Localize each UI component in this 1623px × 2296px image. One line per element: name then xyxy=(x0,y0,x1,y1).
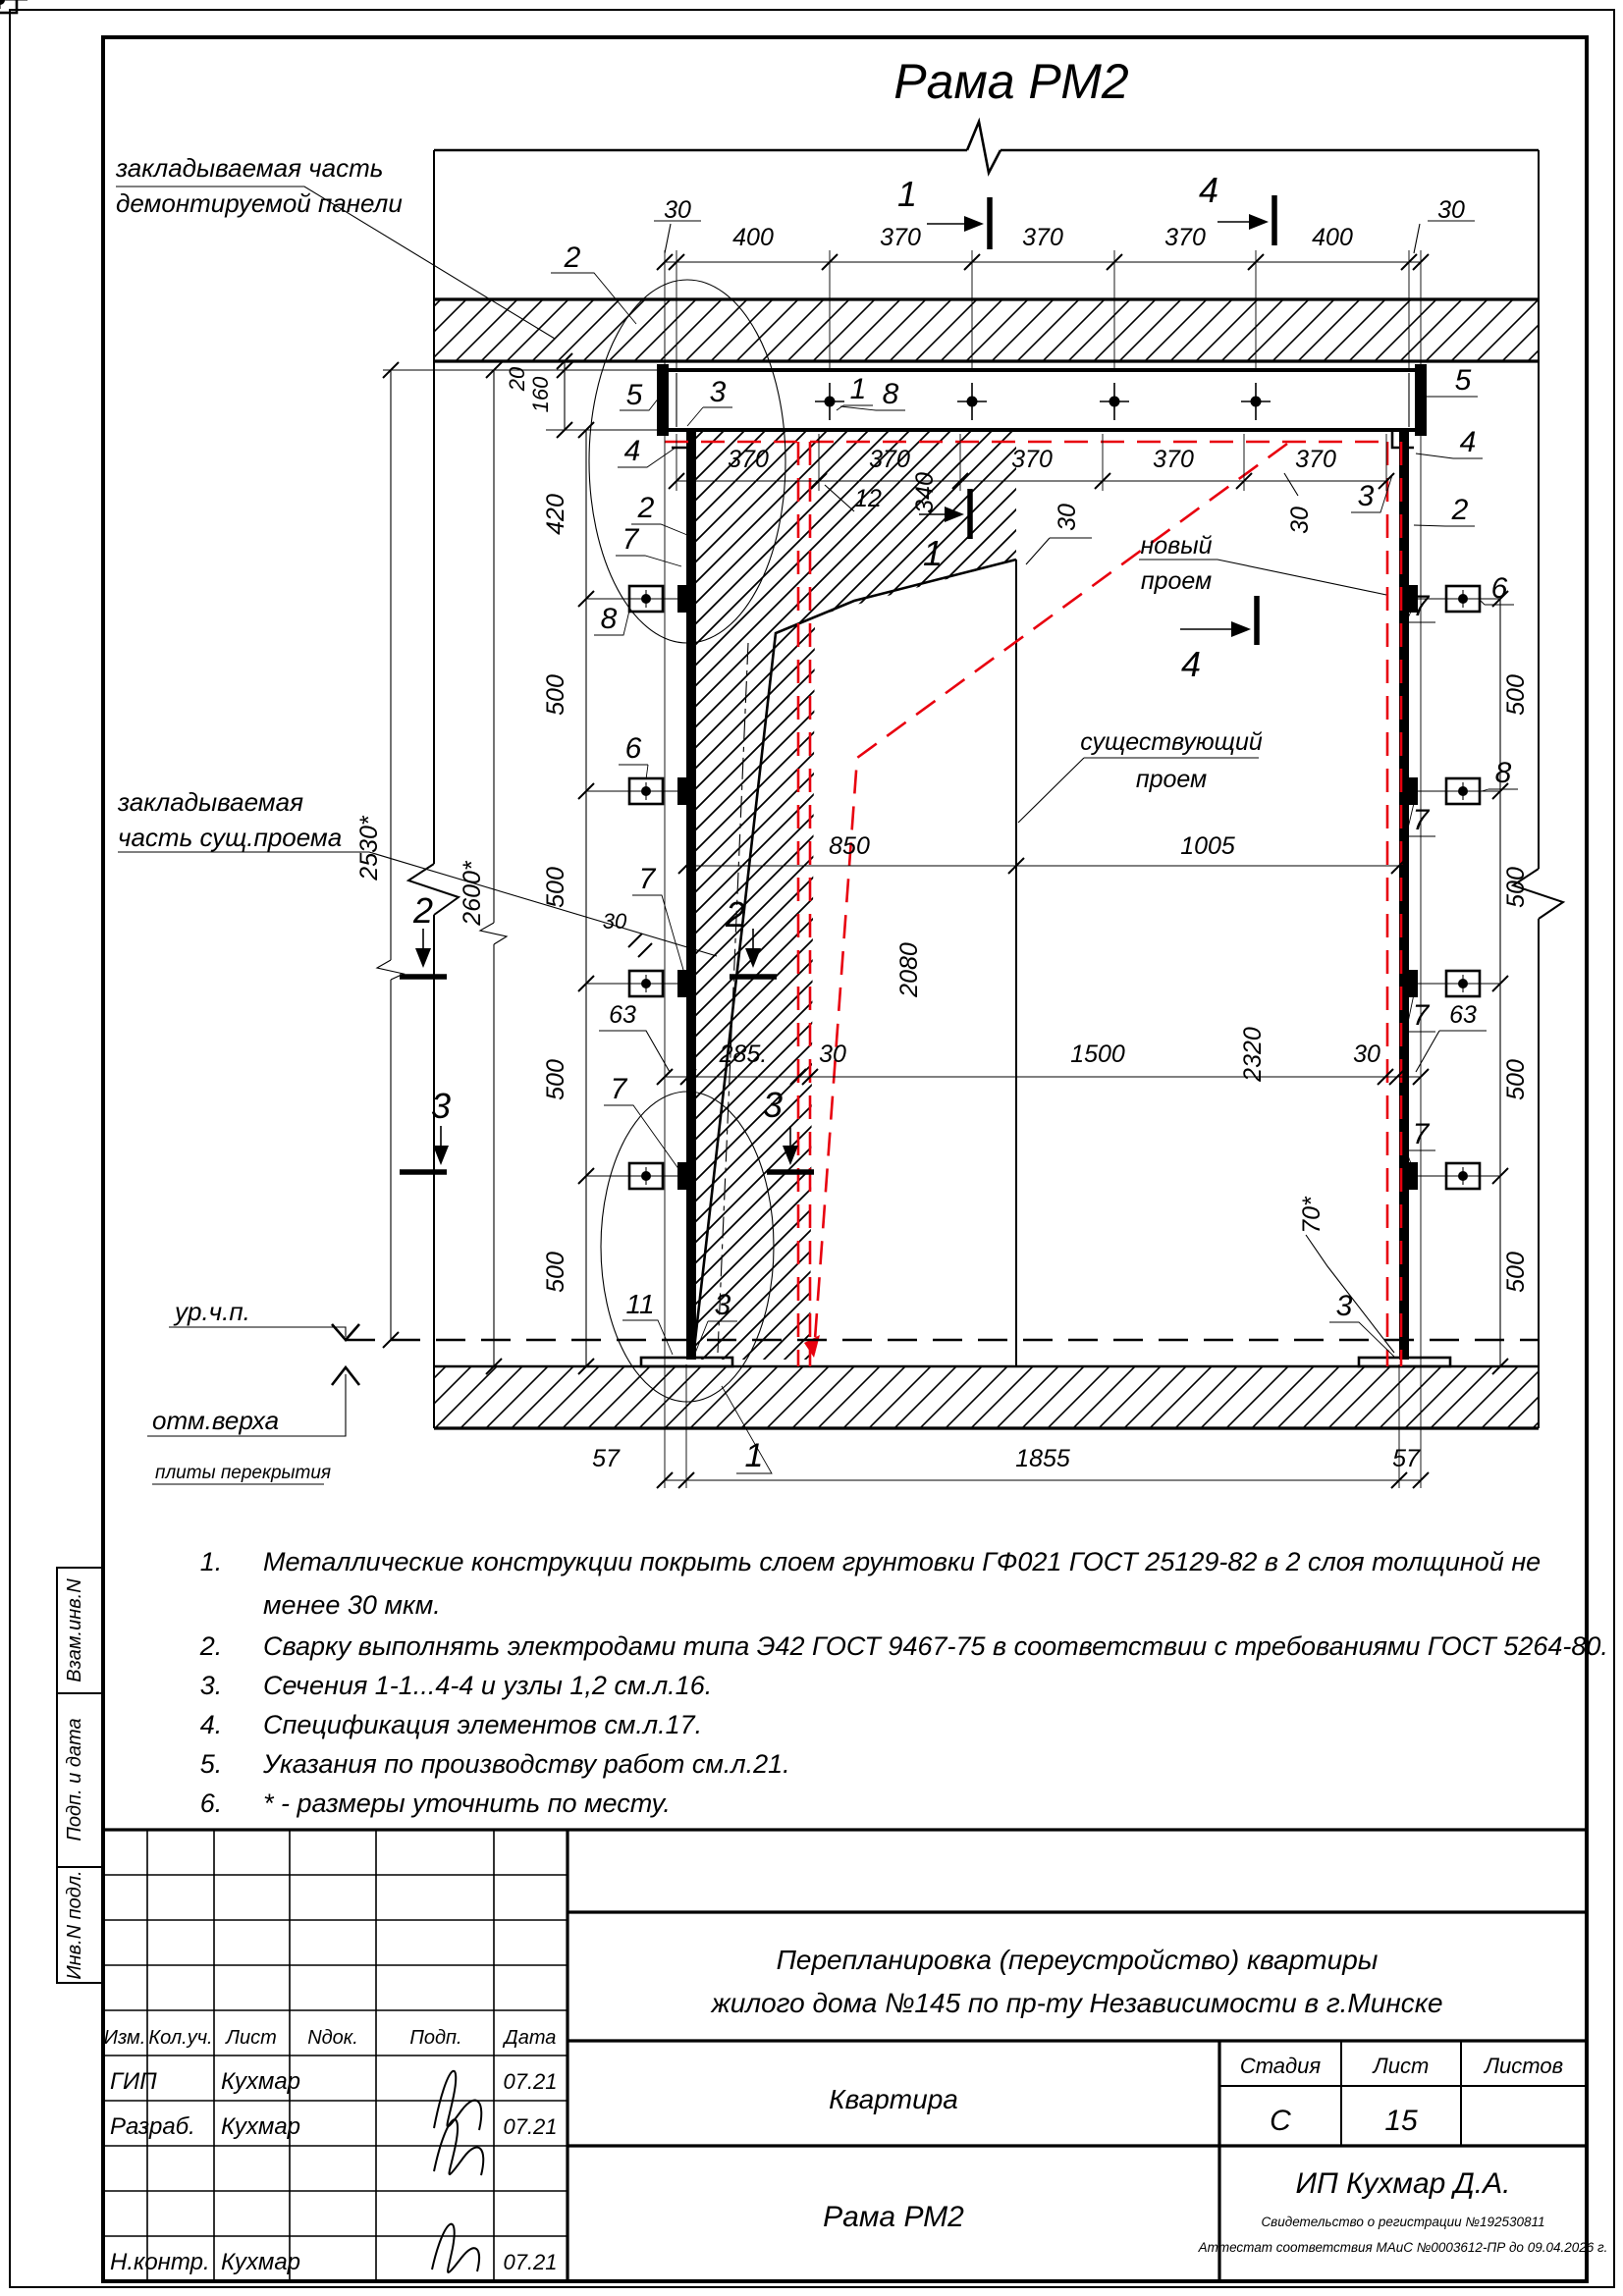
callouts-label: 8 xyxy=(601,603,618,635)
dims-label: 57 xyxy=(592,1445,621,1472)
ceiling-slab-band xyxy=(434,299,1539,361)
stamp-label: Разраб. xyxy=(110,2113,195,2140)
stamp-label: Н.контр. xyxy=(110,2249,210,2275)
notes-label: Сечения 1-1...4-4 и узлы 1,2 см.л.16. xyxy=(263,1671,712,1700)
notes-label: Спецификация элементов см.л.17. xyxy=(263,1710,702,1739)
dims-label: 30 xyxy=(664,196,691,224)
annotations-label: демонтируемой панели xyxy=(116,188,403,218)
callouts-label: 7 xyxy=(611,1073,628,1105)
dims-label: 285. xyxy=(719,1041,768,1068)
dims-label: 30 xyxy=(819,1041,846,1068)
callouts-label: 7 xyxy=(622,523,640,556)
stamp-label: Nдок. xyxy=(307,2027,358,2049)
callouts-label: 2 xyxy=(564,241,581,274)
stamp-label: Листов xyxy=(1483,2054,1563,2078)
annotations-label: проем xyxy=(1136,766,1207,793)
dims-label: 500 xyxy=(1502,674,1530,716)
annotations-label: существующий xyxy=(1080,728,1263,756)
floor-slab-band xyxy=(434,1366,1539,1428)
dims-label: 850 xyxy=(829,832,870,860)
callouts-label: 6 xyxy=(625,732,642,765)
dims-label: 63 xyxy=(609,1001,636,1029)
callouts-label: 7 xyxy=(1413,999,1431,1032)
annotations-label: отм.верха xyxy=(152,1406,279,1435)
notes-label: 1. xyxy=(200,1547,223,1576)
stamp-label: Рама РМ2 xyxy=(823,2201,964,2233)
dims-label: 370 xyxy=(1022,224,1063,251)
callouts-label: 2 xyxy=(637,492,655,524)
dims-label: 370 xyxy=(1295,446,1336,473)
callouts-label: 11 xyxy=(625,1289,654,1319)
dims-label: 1500 xyxy=(1070,1041,1125,1068)
dims-label: 30 xyxy=(1286,507,1314,534)
callouts-label: 7 xyxy=(1413,1118,1431,1150)
stamp-label: 15 xyxy=(1384,2105,1418,2137)
dims-label: 2320 xyxy=(1239,1027,1267,1083)
stamp-label: Инв.N подл. xyxy=(64,1870,85,1979)
sections-label: 3 xyxy=(763,1085,783,1125)
stamp-label: Кухмар xyxy=(221,2068,300,2095)
callouts-label: 4 xyxy=(1460,426,1477,458)
callouts-label: 6 xyxy=(1491,572,1508,605)
stamp-label: Лист xyxy=(224,2027,277,2049)
sections-label: 1 xyxy=(897,174,917,214)
stamp-label: Свидетельство о регистрации №192530811 xyxy=(1261,2215,1544,2229)
dims-label: 420 xyxy=(542,494,569,535)
dims-label: 500 xyxy=(1502,1059,1530,1100)
drawing-canvas: Рама РМ2 3040037037037040030370370370370… xyxy=(0,0,1623,2296)
callouts-label: 1 xyxy=(850,373,867,405)
dims-label: 1005 xyxy=(1180,832,1235,860)
callouts-label: 7 xyxy=(1413,804,1431,836)
dims-label: 500 xyxy=(542,867,569,908)
notes-label: 3. xyxy=(200,1671,223,1700)
notes-label: * - размеры уточнить по месту. xyxy=(263,1789,671,1818)
stamp-label: Стадия xyxy=(1240,2054,1322,2078)
callouts-label: 4 xyxy=(624,435,641,467)
stamp-label: Взам.инв.N xyxy=(64,1578,85,1682)
stamp-label: Кол.уч. xyxy=(148,2027,212,2049)
sections-label: 2 xyxy=(725,894,745,934)
dims-label: 500 xyxy=(1502,1252,1530,1293)
callouts-label: 2 xyxy=(1451,494,1469,526)
annotations-label: ур.ч.п. xyxy=(173,1297,250,1326)
callouts-label: 7 xyxy=(1413,590,1431,622)
callouts-label: 7 xyxy=(639,863,657,895)
stamp-label: Аттестат соответствия МАиС №0003612-ПР д… xyxy=(1198,2240,1608,2255)
dims-label: 1855 xyxy=(1015,1445,1070,1472)
stamp-label: Изм. xyxy=(104,2027,146,2049)
dims-label: 500 xyxy=(542,1252,569,1293)
annotations-label: часть сущ.проема xyxy=(118,823,342,852)
notes-label: Металлические конструкции покрыть слоем … xyxy=(263,1547,1541,1576)
callouts-label: 5 xyxy=(1455,364,1472,397)
stamp-label: С xyxy=(1270,2105,1291,2137)
dims-label: 2600* xyxy=(459,860,486,927)
stamp-label: 07.21 xyxy=(503,2069,557,2094)
notes-label: менее 30 мкм. xyxy=(263,1590,441,1620)
callouts-label: 1 xyxy=(745,1437,764,1474)
stamp-label: ИП Кухмар Д.А. xyxy=(1296,2167,1511,2200)
dims-label: 30 xyxy=(1437,196,1465,224)
dims-label: 370 xyxy=(1011,446,1053,473)
notes-label: 5. xyxy=(200,1749,223,1779)
sections-label: 2 xyxy=(412,890,433,931)
dims-label: 500 xyxy=(542,674,569,716)
dims-label: 370 xyxy=(869,446,910,473)
stamp-label: Перепланировка (переустройство) квартиры xyxy=(777,1945,1379,1975)
sections-label: 4 xyxy=(1181,644,1201,684)
stamp-label: Подп. xyxy=(409,2027,461,2049)
annotations-label: проем xyxy=(1141,567,1212,595)
dims-label: 160 xyxy=(528,376,553,412)
callouts-label: 3 xyxy=(710,376,727,408)
callouts-label: 3 xyxy=(1336,1290,1353,1322)
sections-label: 4 xyxy=(1199,170,1218,210)
sections-label: 1 xyxy=(923,533,943,573)
dims-label: 30 xyxy=(603,909,627,934)
dims-label: 12 xyxy=(854,485,882,512)
notes-label: 2. xyxy=(199,1631,223,1661)
drawing-sheet: Рама РМ2 3040037037037040030370370370370… xyxy=(0,0,1623,2296)
notes-label: 6. xyxy=(200,1789,223,1818)
notes-label: Сварку выполнять электродами типа Э42 ГО… xyxy=(263,1631,1608,1661)
stamp-label: Кухмар xyxy=(221,2249,300,2275)
dims-label: 340 xyxy=(911,472,939,513)
dims-label: 20 xyxy=(505,366,529,392)
callouts-label: 3 xyxy=(1358,480,1375,512)
dims-label: 30 xyxy=(1054,504,1081,531)
dims-label: 2080 xyxy=(895,942,923,998)
sections-label: 3 xyxy=(431,1086,451,1126)
stamp-label: жилого дома №145 по пр-ту Независимости … xyxy=(709,1988,1442,2018)
dims-label: 2530* xyxy=(355,815,383,881)
stamp-label: Кухмар xyxy=(221,2113,300,2140)
dims-label: 57 xyxy=(1392,1445,1421,1472)
stamp-label: Квартира xyxy=(829,2084,958,2114)
drawing-title: Рама РМ2 xyxy=(893,54,1129,109)
notes-label: 4. xyxy=(200,1710,223,1739)
stamp-label: Лист xyxy=(1372,2054,1430,2078)
stamp-label: ГИП xyxy=(110,2068,157,2095)
notes-label: Указания по производству работ см.л.21. xyxy=(262,1749,790,1779)
dims-label: 370 xyxy=(728,446,769,473)
stamp-label: Дата xyxy=(503,2027,557,2049)
callouts-label: 5 xyxy=(626,379,643,411)
stamp-label: Подп. и дата xyxy=(64,1718,85,1841)
callouts-label: 8 xyxy=(1495,757,1512,789)
dims-label: 70* xyxy=(1298,1196,1325,1234)
stamp-label: 07.21 xyxy=(503,2114,557,2139)
dims-label: 500 xyxy=(1502,867,1530,908)
dims-label: 63 xyxy=(1449,1001,1477,1029)
dims-label: 500 xyxy=(542,1059,569,1100)
dims-label: 370 xyxy=(1153,446,1194,473)
dims-label: 400 xyxy=(732,224,774,251)
stamp-label: 07.21 xyxy=(503,2250,557,2274)
callouts-label: 8 xyxy=(883,378,899,410)
dims-label: 30 xyxy=(1353,1041,1380,1068)
annotations-label: плиты перекрытия xyxy=(155,1463,331,1483)
dims-label: 370 xyxy=(880,224,921,251)
annotations-label: закладываемая xyxy=(117,787,303,817)
annotations-label: закладываемая часть xyxy=(115,153,383,183)
dims-label: 370 xyxy=(1164,224,1206,251)
callouts-label: 3 xyxy=(715,1289,731,1321)
dims-label: 400 xyxy=(1312,224,1353,251)
annotations-label: новый xyxy=(1140,532,1212,560)
